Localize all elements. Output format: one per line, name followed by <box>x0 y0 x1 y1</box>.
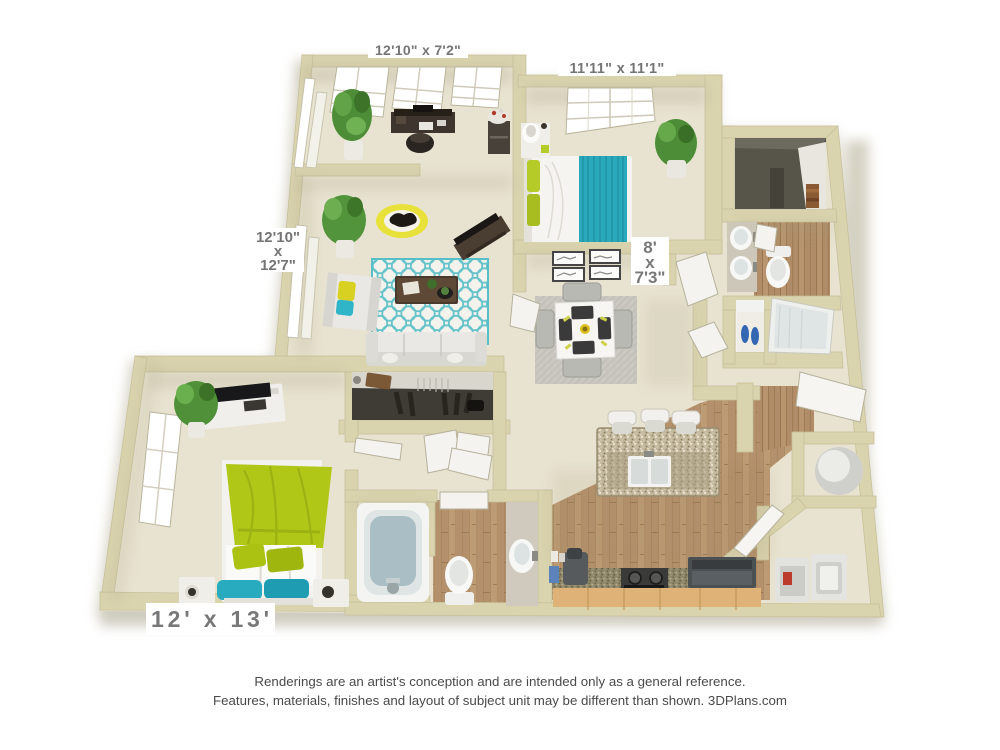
svg-text:12'7": 12'7" <box>260 257 296 274</box>
svg-text:12' x 13': 12' x 13' <box>151 606 273 632</box>
svg-text:12'10" x 7'2": 12'10" x 7'2" <box>375 42 461 58</box>
svg-text:7'3": 7'3" <box>634 268 665 287</box>
svg-text:11'11" x 11'1": 11'11" x 11'1" <box>569 61 664 77</box>
